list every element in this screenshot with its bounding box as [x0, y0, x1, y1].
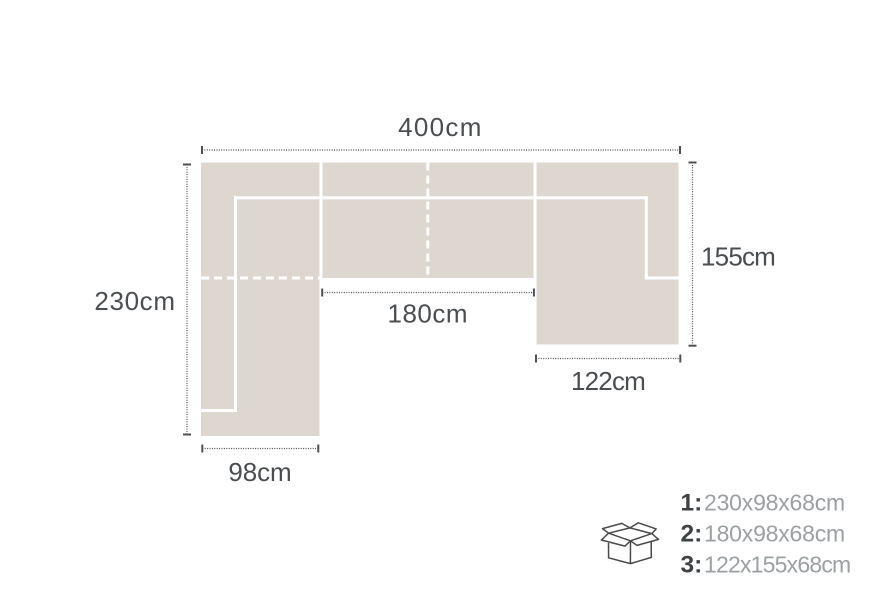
svg-text:400cm: 400cm: [398, 112, 483, 142]
svg-text:3:: 3:: [681, 552, 703, 579]
svg-text:1:: 1:: [681, 490, 703, 517]
svg-text:230cm: 230cm: [94, 286, 175, 316]
svg-text:122x155x68cm: 122x155x68cm: [704, 552, 850, 578]
svg-text:2:: 2:: [681, 521, 703, 548]
svg-text:230x98x68cm: 230x98x68cm: [704, 490, 845, 516]
svg-text:155cm: 155cm: [701, 242, 775, 272]
svg-text:180x98x68cm: 180x98x68cm: [704, 521, 845, 547]
svg-text:122cm: 122cm: [571, 366, 645, 396]
svg-text:98cm: 98cm: [228, 457, 291, 487]
svg-text:180cm: 180cm: [388, 299, 469, 329]
